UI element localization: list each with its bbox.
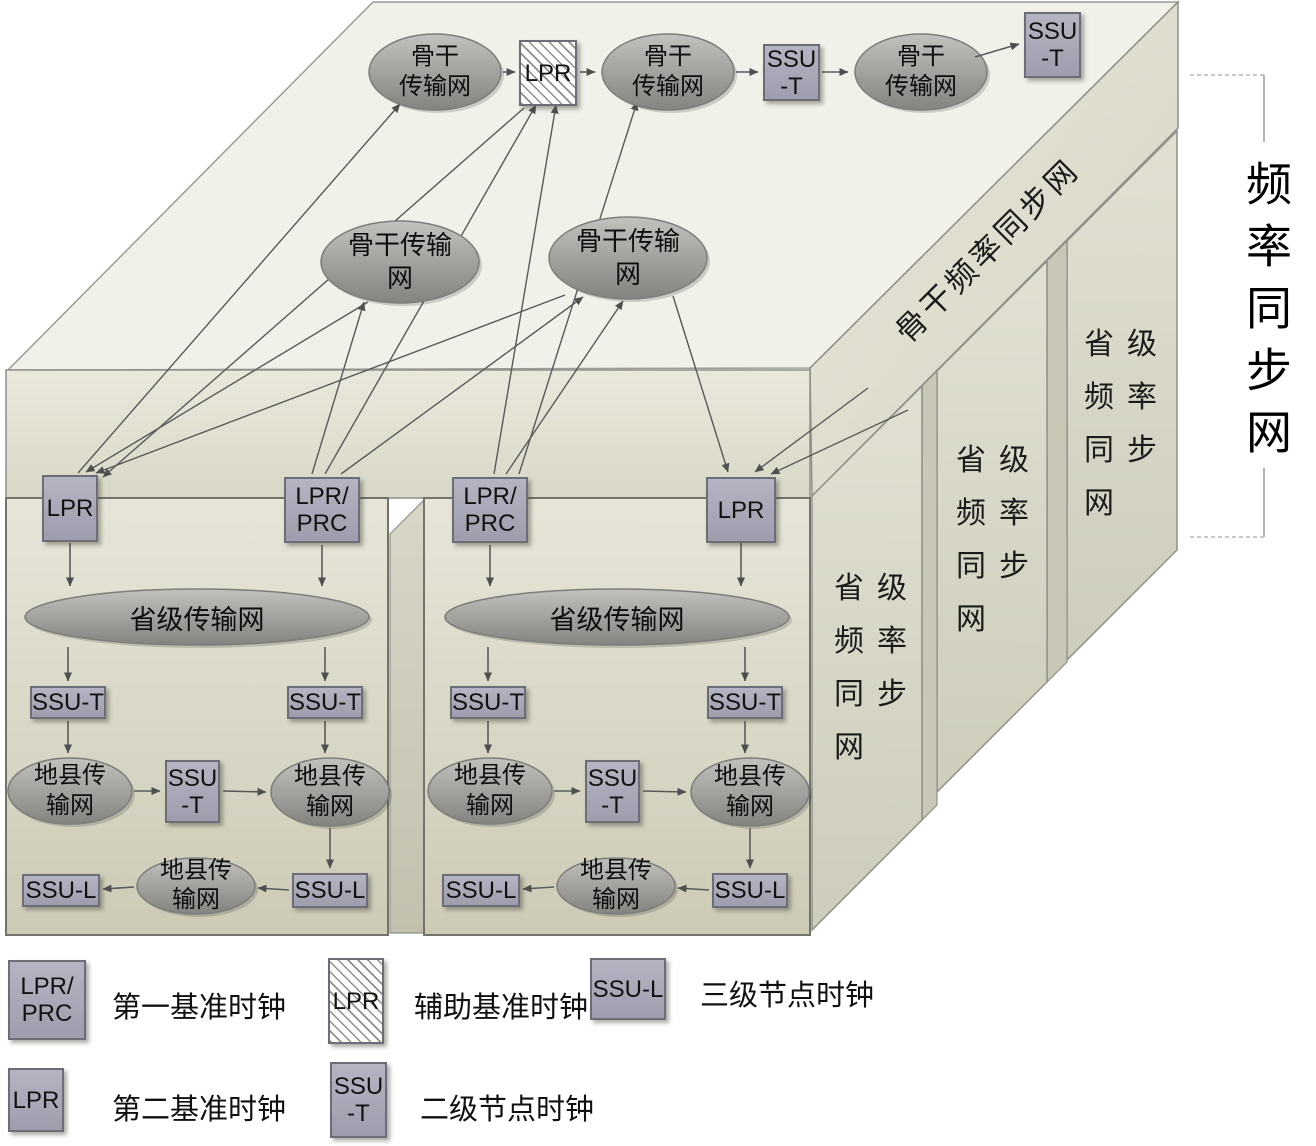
node-lpr-prc-right-panel: LPR/ PRC	[452, 477, 528, 543]
caption-line: 网	[1084, 477, 1170, 530]
legend-box-lpr: LPR	[8, 1068, 64, 1132]
caption-line: 同步	[1084, 424, 1170, 477]
slab-side-strip-bc	[1047, 241, 1067, 682]
node-label: -T	[1041, 45, 1064, 72]
frequency-sync-network-diagram: { "title": "频率同步网", "labels": { "lpr": "…	[0, 0, 1316, 1146]
node-label: LPR/	[463, 483, 516, 510]
node-label: SSU-T	[289, 689, 361, 716]
node-ssu-t-mid: SSU -T	[165, 760, 220, 823]
node-lpr-auxiliary-top: LPR	[519, 40, 577, 106]
legend-text-first-reference-clock: 第一基准时钟	[112, 984, 286, 1026]
legend-text-second-reference-clock: 第二基准时钟	[112, 1086, 286, 1128]
caption-line: 省级	[834, 562, 920, 615]
legend-box-lpr-prc: LPR/ PRC	[8, 960, 86, 1040]
node-ssu-l-right: SSU-L	[712, 873, 788, 908]
legend-box-label: PRC	[22, 1000, 73, 1027]
node-ssu-t-left: SSU-T	[450, 686, 526, 719]
provincial-slab-caption-3: 省级 频率 同步 网	[1084, 318, 1170, 530]
legend-text-third-level-node-clock: 三级节点时钟	[700, 972, 874, 1014]
node-label: SSU-L	[295, 877, 366, 904]
legend-box-lpr-hatched: LPR	[328, 958, 384, 1044]
legend-box-label: SSU	[334, 1073, 383, 1100]
panel-gap-side-face	[390, 500, 424, 933]
legend-text-auxiliary-reference-clock: 辅助基准时钟	[414, 984, 588, 1026]
node-label: PRC	[297, 510, 348, 537]
legend-box-label: SSU-L	[593, 976, 664, 1003]
node-label: SSU-T	[709, 689, 781, 716]
caption-line: 省级	[1084, 318, 1170, 371]
caption-line: 网	[834, 721, 920, 774]
provincial-slab-caption-1: 省级 频率 同步 网	[834, 562, 920, 774]
node-lpr-left-panel: LPR	[42, 475, 98, 542]
node-label: SSU-L	[715, 877, 786, 904]
node-label: SSU	[168, 765, 217, 792]
caption-line: 频率	[834, 615, 920, 668]
node-ssu-t-right: SSU-T	[287, 686, 363, 719]
node-label: SSU-L	[26, 877, 97, 904]
node-ssu-l-left: SSU-L	[442, 874, 520, 907]
node-label: LPR	[718, 497, 765, 524]
legend-box-label: LPR	[13, 1087, 60, 1114]
caption-line: 频率	[1084, 371, 1170, 424]
legend-box-label: -T	[347, 1100, 370, 1127]
node-label: SSU	[1028, 18, 1077, 45]
front-strip-face	[6, 370, 810, 498]
provincial-slab-caption-2: 省级 频率 同步 网	[956, 434, 1042, 646]
slab-side-strip-ab	[922, 371, 937, 820]
node-lpr-right-panel: LPR	[706, 477, 776, 543]
caption-line: 省级	[956, 434, 1042, 487]
node-ssu-t-mid: SSU -T	[585, 760, 640, 823]
legend-box-label: LPR	[333, 988, 380, 1015]
legend-box-ssu-t: SSU -T	[330, 1062, 387, 1138]
legend-box-label: LPR/	[20, 973, 73, 1000]
node-label: SSU-T	[32, 689, 104, 716]
node-ssu-t-left: SSU-T	[30, 686, 106, 719]
node-label: SSU-L	[446, 877, 517, 904]
caption-line: 同步	[956, 540, 1042, 593]
node-ssu-t-top: SSU -T	[763, 44, 820, 101]
node-label: SSU	[588, 765, 637, 792]
node-label: LPR	[47, 495, 94, 522]
node-ssu-t-right: SSU-T	[707, 686, 783, 719]
node-label: SSU	[767, 46, 816, 73]
node-ssu-t-top-corner: SSU -T	[1024, 12, 1081, 78]
legend-box-ssu-l: SSU-L	[590, 958, 666, 1020]
legend-text-second-level-node-clock: 二级节点时钟	[420, 1086, 594, 1128]
node-label: LPR/	[295, 483, 348, 510]
node-label: SSU-T	[452, 689, 524, 716]
caption-line: 网	[956, 593, 1042, 646]
caption-line: 频率	[956, 487, 1042, 540]
diagram-side-title: 频率同步网	[1232, 160, 1298, 480]
node-label: -T	[601, 792, 624, 819]
node-label: LPR	[525, 60, 572, 87]
node-ssu-l-right: SSU-L	[292, 873, 368, 908]
caption-line: 同步	[834, 668, 920, 721]
node-lpr-prc-left-panel: LPR/ PRC	[284, 477, 360, 543]
node-label: PRC	[465, 510, 516, 537]
node-ssu-l-left: SSU-L	[22, 874, 100, 907]
node-label: -T	[780, 73, 803, 100]
node-label: -T	[181, 792, 204, 819]
